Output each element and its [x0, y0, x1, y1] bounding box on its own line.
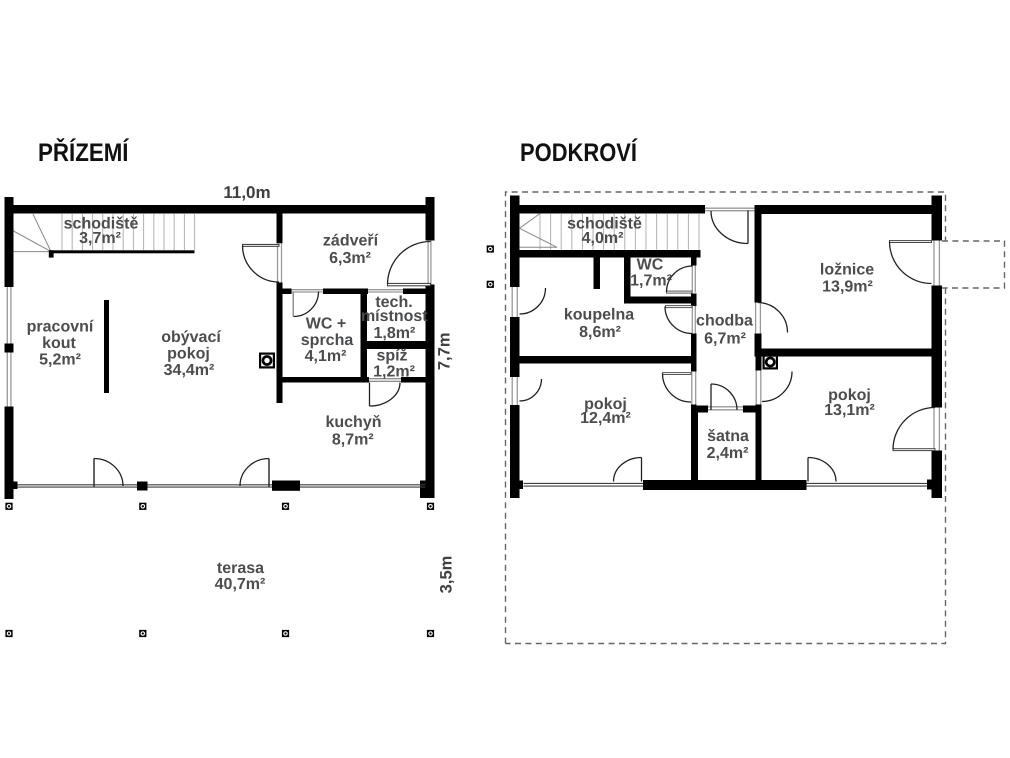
svg-text:8,7m²: 8,7m²: [332, 432, 374, 449]
svg-text:4,0m²: 4,0m²: [582, 230, 624, 247]
svg-text:PODKROVÍ: PODKROVÍ: [520, 138, 638, 167]
svg-text:34,4m²: 34,4m²: [164, 362, 215, 379]
svg-text:13,1m²: 13,1m²: [824, 402, 875, 419]
svg-text:11,0m: 11,0m: [223, 183, 270, 202]
svg-text:13,9m²: 13,9m²: [822, 279, 873, 296]
svg-text:2,4m²: 2,4m²: [707, 445, 749, 462]
svg-text:3,7m²: 3,7m²: [79, 230, 121, 247]
svg-text:kout: kout: [42, 335, 76, 352]
svg-text:terasa: terasa: [217, 560, 264, 577]
svg-text:1,8m²: 1,8m²: [374, 325, 416, 342]
svg-text:kuchyň: kuchyň: [325, 414, 381, 431]
svg-text:pracovní: pracovní: [27, 319, 94, 336]
svg-text:12,4m²: 12,4m²: [580, 410, 631, 427]
svg-text:WC +: WC +: [306, 316, 346, 333]
svg-text:obývací: obývací: [161, 329, 221, 346]
svg-text:ložnice: ložnice: [820, 262, 874, 279]
svg-text:místnost: místnost: [361, 308, 428, 325]
svg-text:1,7m²: 1,7m²: [630, 273, 672, 290]
svg-text:chodba: chodba: [696, 313, 753, 330]
svg-text:6,7m²: 6,7m²: [704, 331, 746, 348]
svg-text:PŘÍZEMÍ: PŘÍZEMÍ: [38, 138, 129, 167]
svg-text:5,2m²: 5,2m²: [39, 352, 81, 369]
svg-text:40,7m²: 40,7m²: [215, 576, 266, 593]
svg-text:1,2m²: 1,2m²: [373, 364, 415, 381]
svg-text:8,6m²: 8,6m²: [579, 324, 621, 341]
svg-text:pokoj: pokoj: [167, 346, 210, 363]
svg-text:3,5m: 3,5m: [437, 556, 455, 594]
svg-text:šatna: šatna: [707, 428, 749, 445]
svg-text:WC: WC: [637, 257, 664, 274]
svg-text:6,3m²: 6,3m²: [329, 250, 371, 267]
svg-text:sprcha: sprcha: [301, 332, 354, 349]
svg-text:zádveří: zádveří: [323, 233, 379, 250]
svg-text:spíž: spíž: [376, 348, 407, 365]
svg-text:4,1m²: 4,1m²: [305, 348, 347, 365]
svg-text:koupelna: koupelna: [564, 307, 634, 324]
svg-text:7,7m: 7,7m: [436, 332, 454, 370]
